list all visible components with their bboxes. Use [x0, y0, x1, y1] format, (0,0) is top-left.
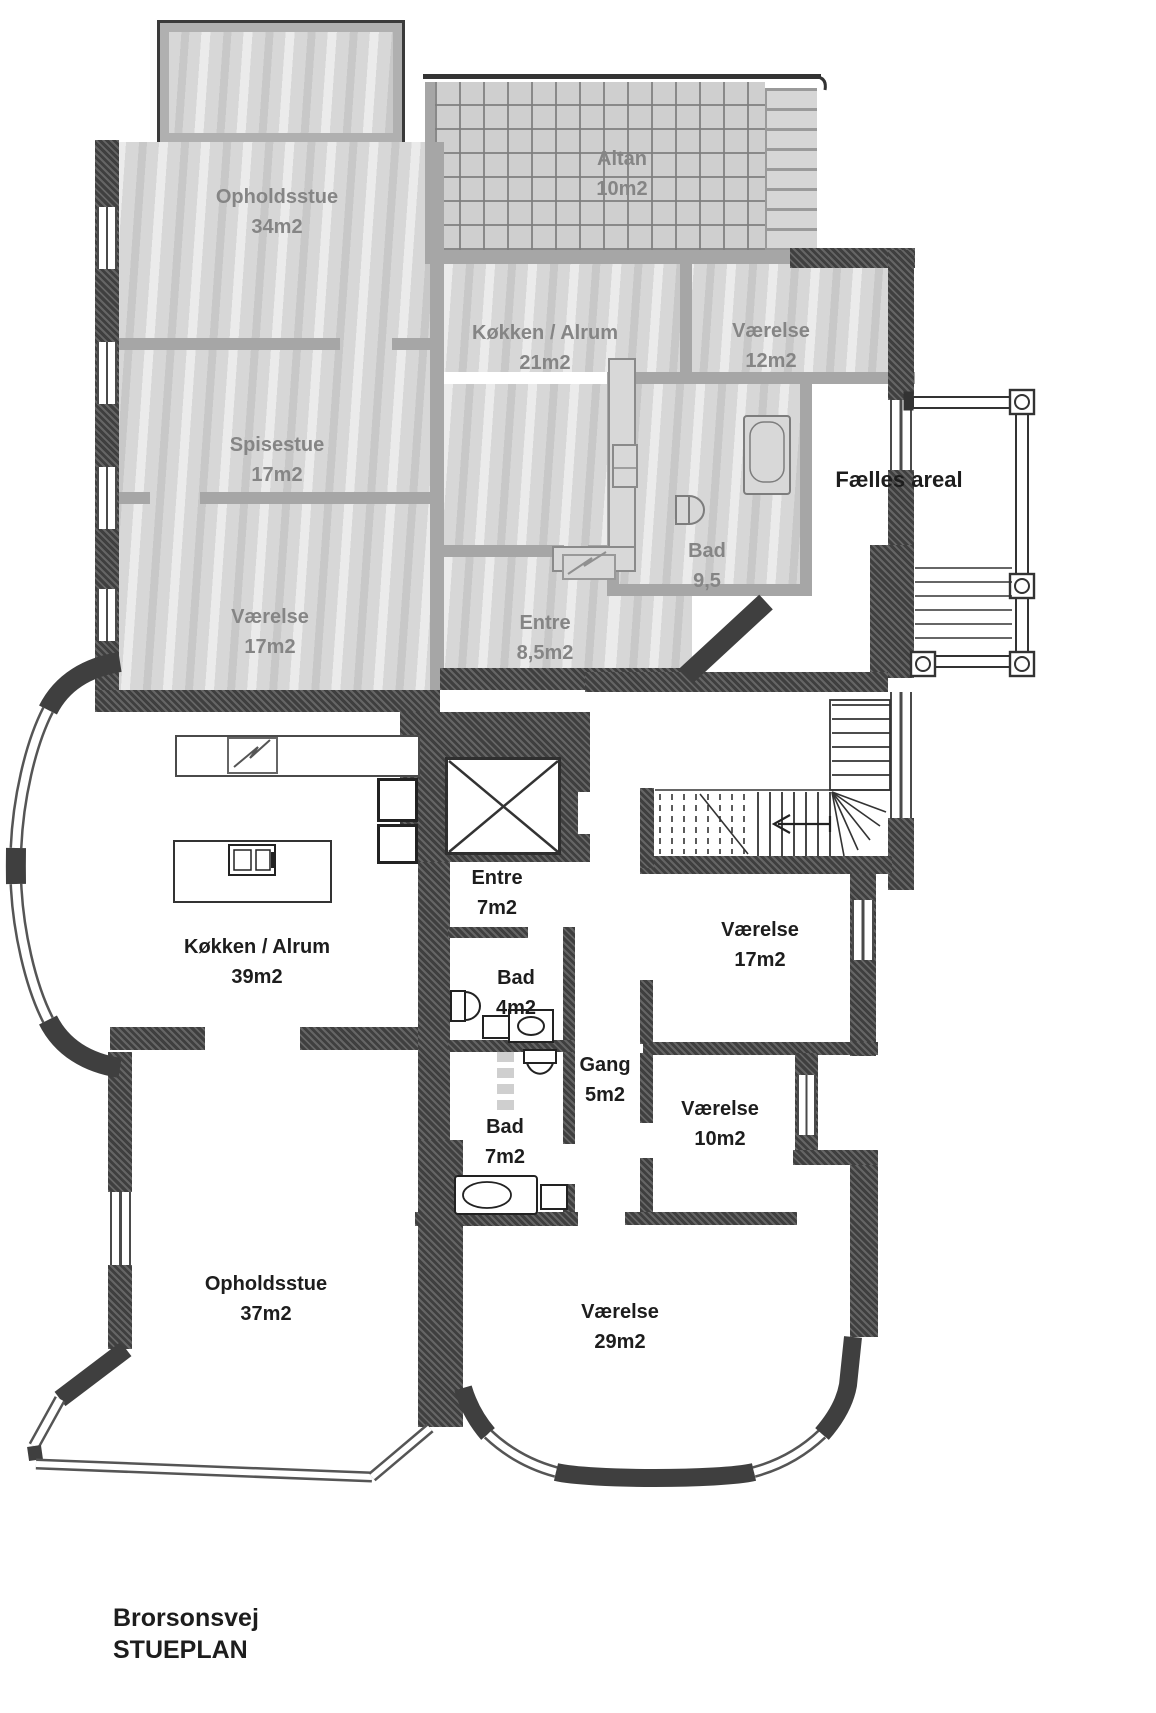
elevator-car: [445, 757, 561, 855]
wall: [640, 1158, 653, 1215]
room-label-bad-7: Bad7m2: [395, 1112, 615, 1172]
fridge-icon: [612, 444, 638, 488]
window: [890, 692, 912, 818]
chamfer-wall: [686, 602, 766, 676]
wall: [463, 1212, 578, 1225]
bay-window-bottom-left: [34, 1349, 430, 1477]
floor-plan: Opholdsstue34m2 Spisestue17m2 Værelse17m…: [0, 0, 1156, 1713]
window: [97, 342, 117, 404]
wall: [680, 252, 792, 264]
window: [890, 400, 912, 470]
room-label-opholdsstue-34: Opholdsstue34m2: [167, 182, 387, 242]
room-label-koekken-21: Køkken / Alrum21m2: [435, 318, 655, 378]
room-label-koekken-39: Køkken / Alrum39m2: [147, 932, 367, 992]
room-label-bad-95: Bad9,5: [597, 536, 817, 596]
cooktop-box: [227, 737, 278, 774]
altan-top-edge: [423, 74, 821, 79]
wall-under-stairs: [640, 856, 892, 874]
external-staircase: [904, 390, 1034, 676]
altan-stair-ladder: [765, 88, 817, 250]
wall-right-edge: [888, 250, 914, 400]
window: [97, 207, 117, 269]
bay-window-left: [16, 662, 120, 1068]
wall: [117, 492, 150, 504]
wall: [200, 492, 430, 504]
room-label-vaerelse-29: Værelse29m2: [510, 1297, 730, 1357]
wall: [448, 927, 528, 938]
elevator-door-gap: [578, 792, 590, 834]
wall: [418, 1140, 463, 1427]
room-label-vaerelse-17-lower: Værelse17m2: [650, 915, 870, 975]
cabinet: [377, 778, 418, 822]
room-label-entre-85: Entre8,5m2: [435, 608, 655, 668]
room-label-bad-4: Bad4m2: [406, 963, 626, 1023]
window: [97, 589, 117, 641]
wall: [625, 1212, 797, 1225]
wall: [110, 1027, 205, 1050]
plan-title: Brorsonsvej STUEPLAN: [113, 1602, 259, 1666]
wall: [108, 1052, 132, 1192]
room-label-entre-7: Entre7m2: [387, 863, 607, 923]
bath-side-square: [540, 1184, 568, 1210]
common-area-label: Fælles areal: [789, 465, 1009, 495]
wall: [888, 818, 914, 890]
stair-direction-arrow: [774, 815, 830, 833]
bathtub-icon: [455, 1176, 537, 1214]
wall: [108, 1265, 132, 1349]
wall-right-edge: [870, 545, 914, 678]
room-label-altan-10: Altan10m2: [512, 144, 732, 204]
window: [97, 467, 117, 529]
room-label-vaerelse-12: Værelse12m2: [661, 316, 881, 376]
room-label-spisestue-17: Spisestue17m2: [167, 430, 387, 490]
staircase: [655, 700, 890, 856]
room-label-vaerelse-17-upper: Værelse17m2: [160, 602, 380, 662]
room-label-opholdsstue-37: Opholdsstue37m2: [156, 1269, 376, 1329]
wall: [585, 672, 888, 692]
wall: [300, 1027, 418, 1050]
kitchen-counter: [175, 735, 420, 777]
wall: [444, 545, 564, 557]
wall: [95, 690, 440, 712]
wall: [392, 338, 430, 350]
room-area-koekken21-lower: [444, 384, 607, 552]
wall: [850, 1165, 878, 1337]
room-area-opholdsstue-top: [157, 20, 405, 142]
plan-title-floor: STUEPLAN: [113, 1634, 259, 1666]
window: [110, 1192, 131, 1265]
wall: [640, 788, 654, 868]
room-label-vaerelse-10: Værelse10m2: [610, 1094, 830, 1154]
cabinet: [377, 824, 418, 864]
kitchen-island: [173, 840, 332, 903]
plan-title-address: Brorsonsvej: [113, 1602, 259, 1634]
wall: [640, 980, 653, 1044]
bay-window-bottom-right: [463, 1337, 853, 1478]
wall: [117, 338, 340, 350]
